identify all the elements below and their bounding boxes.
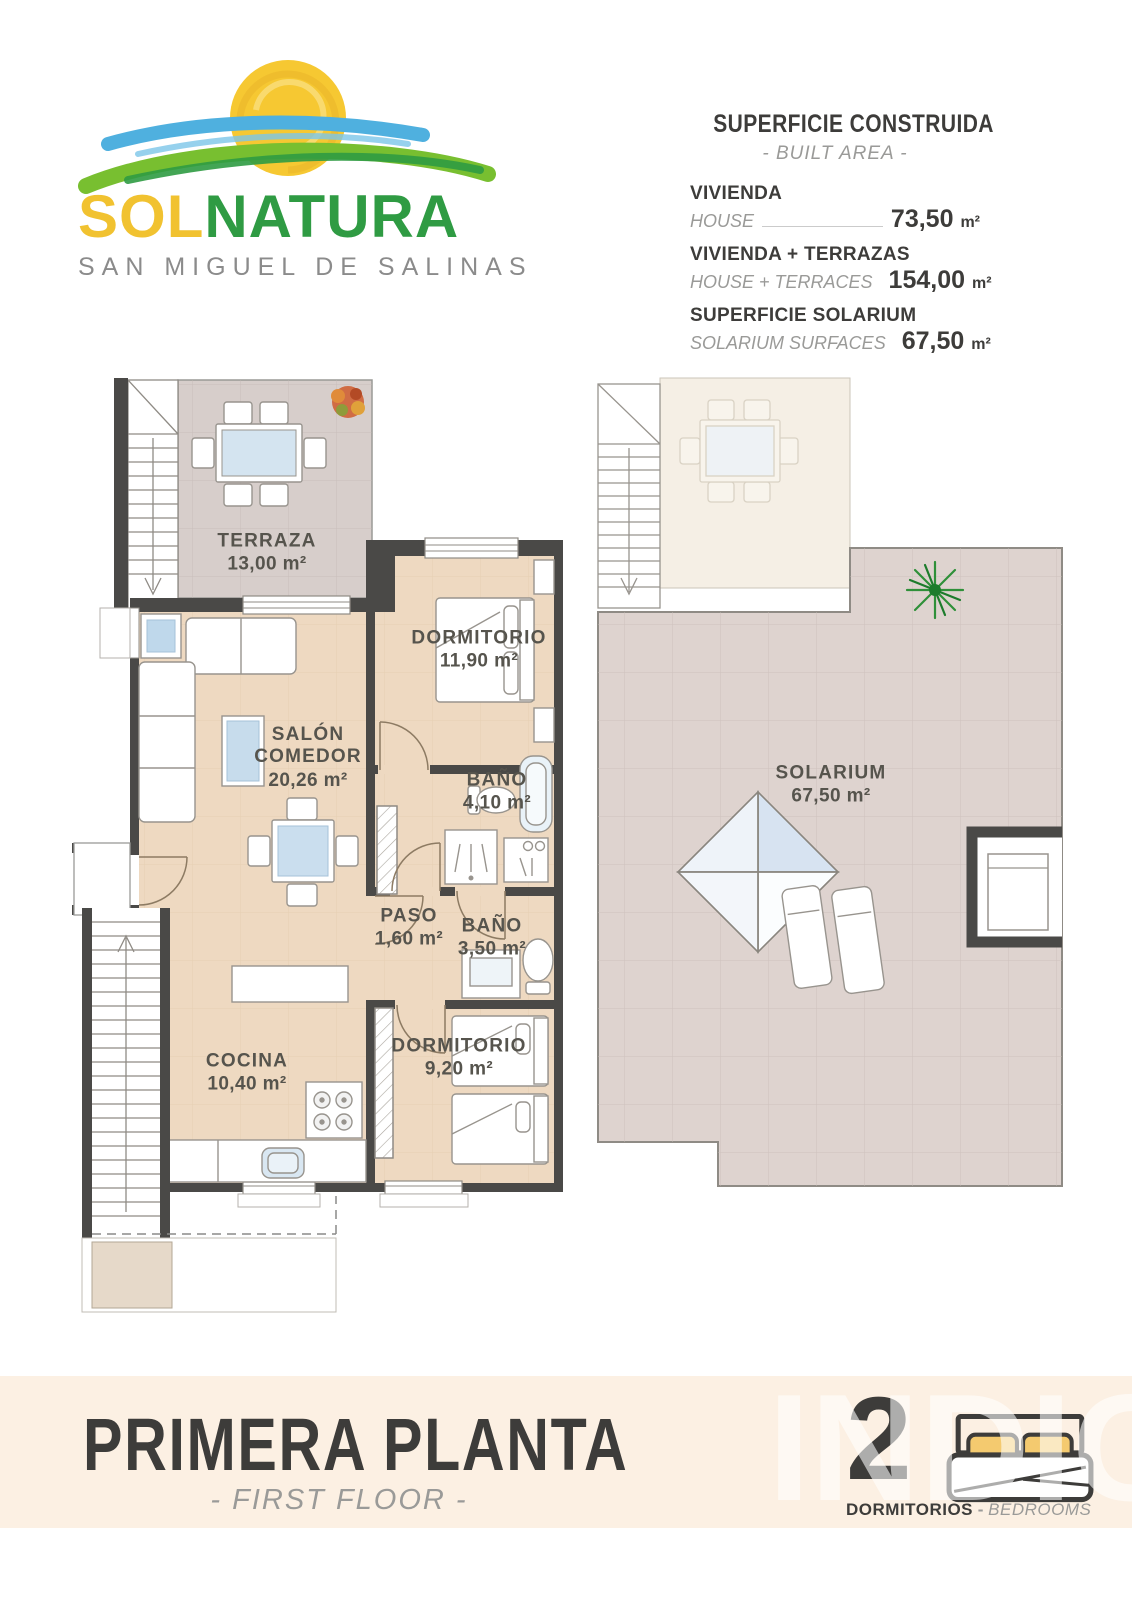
room-label-terraza: TERRAZA 13,00 m² bbox=[217, 530, 316, 575]
solarium-stairs bbox=[598, 384, 660, 608]
floor-plan-drawing bbox=[0, 0, 1132, 1600]
bedroom2-window bbox=[380, 1181, 468, 1207]
kitchen-hob bbox=[306, 1082, 362, 1138]
bedroom1-window bbox=[425, 538, 518, 558]
living-room-window bbox=[243, 596, 350, 614]
brochure-page: SOLNATURA SAN MIGUEL DE SALINAS SUPERFIC… bbox=[0, 0, 1132, 1600]
nightstand bbox=[534, 708, 554, 742]
chimney-shaft bbox=[972, 832, 1062, 942]
page-title: PRIMERA PLANTA bbox=[83, 1408, 628, 1482]
single-bed bbox=[452, 1094, 548, 1164]
nightstand bbox=[534, 560, 554, 594]
room-label-bano-1: BAÑO 4,10 m² bbox=[463, 769, 531, 814]
room-label-paso: PASO 1,60 m² bbox=[375, 905, 443, 950]
terrace-stairs bbox=[114, 378, 178, 610]
side-table bbox=[141, 614, 181, 658]
page-subtitle: - FIRST FLOOR - bbox=[83, 1484, 595, 1517]
kitchen-sink bbox=[262, 1148, 304, 1178]
solarium-plant-icon bbox=[907, 562, 963, 618]
room-label-cocina: COCINA 10,40 m² bbox=[206, 1050, 288, 1095]
room-label-dormitorio-1: DORMITORIO 11,90 m² bbox=[411, 627, 546, 672]
toilet bbox=[523, 939, 553, 994]
floor-plan: TERRAZA 13,00 m² DORMITORIO 11,90 m² SAL… bbox=[0, 0, 1132, 1600]
footer-band: PRIMERA PLANTA - FIRST FLOOR - 2 DORMITO… bbox=[0, 1376, 1132, 1528]
shower bbox=[445, 830, 497, 884]
room-label-salon-comedor: SALÓN COMEDOR 20,26 m² bbox=[254, 724, 362, 792]
room-label-solarium: SOLARIUM 67,50 m² bbox=[776, 762, 887, 807]
room-label-bano-2: BAÑO 3,50 m² bbox=[458, 915, 526, 960]
kitchen-peninsula bbox=[232, 966, 348, 1002]
kitchen-window bbox=[238, 1181, 320, 1207]
bedrooms-count: 2 bbox=[846, 1380, 912, 1498]
bedrooms-label: DORMITORIOS - BEDROOMS bbox=[846, 1500, 1106, 1520]
solarium-roof-ghost bbox=[660, 378, 850, 588]
room-label-dormitorio-2: DORMITORIO 9,20 m² bbox=[391, 1035, 526, 1080]
left-wall-window bbox=[100, 608, 139, 658]
bed-icon bbox=[944, 1414, 1096, 1509]
washer bbox=[504, 838, 548, 882]
